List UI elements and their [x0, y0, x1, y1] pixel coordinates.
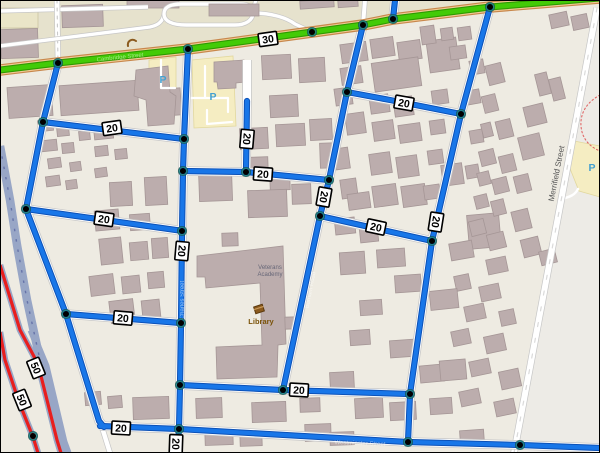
svg-text:Charles Street: Charles Street [180, 280, 186, 319]
svg-text:P: P [209, 91, 216, 103]
svg-text:20: 20 [117, 312, 130, 325]
svg-text:20: 20 [316, 190, 330, 204]
svg-text:20: 20 [97, 213, 110, 227]
svg-text:20: 20 [293, 385, 305, 398]
svg-text:P: P [588, 162, 595, 174]
svg-text:20: 20 [428, 215, 442, 229]
svg-text:30: 30 [261, 33, 274, 47]
svg-text:20: 20 [240, 133, 253, 146]
svg-text:20: 20 [115, 423, 127, 436]
svg-text:20: 20 [169, 438, 181, 450]
svg-text:20: 20 [175, 245, 188, 258]
svg-text:20: 20 [105, 122, 118, 136]
svg-text:Library: Library [248, 317, 274, 326]
svg-text:P: P [159, 74, 166, 86]
svg-text:Academy: Academy [257, 272, 282, 278]
svg-text:Veterans: Veterans [258, 265, 282, 271]
svg-text:20: 20 [397, 97, 411, 111]
svg-text:20: 20 [257, 168, 270, 181]
